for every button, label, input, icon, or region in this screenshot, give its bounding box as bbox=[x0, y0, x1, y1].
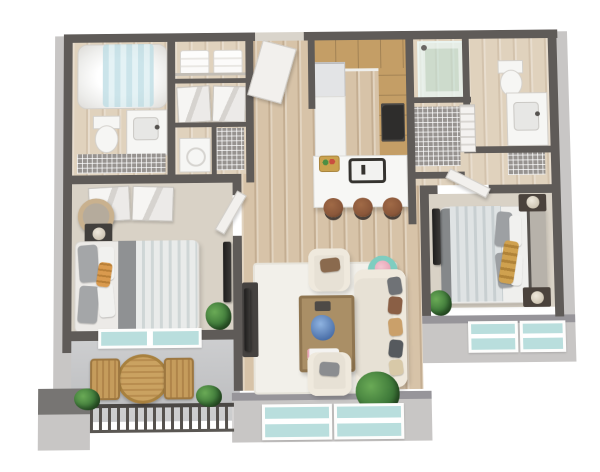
towel-stack-1 bbox=[180, 50, 209, 75]
bedroom1-pillow-gray-2 bbox=[77, 286, 100, 324]
washer-wire-divider bbox=[212, 122, 217, 182]
sofa-pillow-4 bbox=[388, 339, 404, 358]
floor-plan-image: { "meta": { "title": "3D Floor Plan — Tw… bbox=[0, 0, 600, 472]
refrigerator bbox=[314, 62, 346, 98]
bedroom1-pillow-white-2 bbox=[97, 283, 116, 318]
bedroom1-plant bbox=[206, 302, 232, 330]
bedroom1-bottom-wall-left bbox=[62, 331, 98, 341]
bedroom2-lamp-top bbox=[526, 196, 539, 209]
bedroom2-top-wall-left bbox=[420, 185, 438, 194]
bedroom1-blanket bbox=[118, 241, 136, 331]
shower-head bbox=[421, 45, 427, 51]
bathroom1-wire-shelf bbox=[77, 153, 166, 173]
bar-stool-1 bbox=[323, 198, 343, 218]
bathroom2-accordion-door bbox=[459, 104, 476, 152]
balcony-railing bbox=[90, 403, 234, 433]
sofa-pillow-5 bbox=[388, 359, 404, 376]
island-sink bbox=[348, 158, 386, 183]
linen-bifold-divider bbox=[167, 78, 253, 84]
fruit-basket bbox=[319, 156, 340, 173]
bathroom2-bottom-wall bbox=[464, 146, 559, 154]
vanity-2-sink bbox=[513, 102, 539, 131]
bedroom1-duvet bbox=[136, 240, 198, 331]
column-front bbox=[38, 414, 90, 450]
living-window-2 bbox=[334, 403, 405, 440]
kitchen-counter-left bbox=[314, 96, 346, 158]
armchair-top-cushion bbox=[319, 257, 340, 273]
balcony-bush-right bbox=[196, 385, 222, 407]
vanity-2-faucet bbox=[535, 111, 540, 116]
island-faucet bbox=[361, 165, 365, 175]
bedroom2-window-1 bbox=[468, 321, 518, 353]
range-stove bbox=[381, 103, 405, 142]
armchair-bottom-cushion bbox=[319, 361, 340, 376]
toilet-1-bowl bbox=[95, 125, 119, 153]
bedroom1-lamp bbox=[93, 227, 106, 240]
sofa-pillow-2 bbox=[387, 296, 402, 315]
laundry-wire-shelf bbox=[217, 128, 245, 171]
apartment-floor-plan bbox=[0, 10, 600, 472]
living-tv bbox=[244, 288, 250, 351]
coffee-table-decor-dark bbox=[315, 301, 331, 311]
washer-door bbox=[186, 147, 206, 166]
hall-bifold-door-1 bbox=[176, 85, 211, 123]
patio-chair-right bbox=[164, 358, 194, 400]
bedroom2-top-wall-right bbox=[489, 184, 561, 193]
kitchen-left-wall bbox=[308, 40, 316, 109]
hall-bifold-door-2 bbox=[212, 85, 246, 122]
living-window bbox=[262, 404, 332, 441]
coffee-table-flowers-blue bbox=[311, 315, 335, 341]
balcony-sliding-door bbox=[98, 328, 202, 349]
balcony-bush-left bbox=[74, 388, 100, 410]
bedroom2-lamp-bottom bbox=[531, 291, 544, 304]
left-wall bbox=[62, 34, 72, 353]
bar-stool-2 bbox=[353, 198, 373, 218]
bedroom2-window-2 bbox=[520, 320, 567, 352]
bedroom2-plant bbox=[428, 290, 452, 316]
sofa-pillow-1 bbox=[387, 276, 403, 295]
bedroom2-tv bbox=[432, 209, 441, 265]
living-bedroom1-divider-lower bbox=[233, 236, 243, 391]
sofa-pillow-3 bbox=[388, 318, 404, 337]
bedroom1-bifold-2 bbox=[131, 186, 174, 222]
bathroom1-right-wall bbox=[167, 42, 175, 183]
closet-column-right-wall bbox=[245, 41, 254, 182]
shower-curtain bbox=[103, 44, 154, 107]
towel-stack-2 bbox=[213, 50, 242, 75]
bedroom1-tv bbox=[223, 242, 231, 303]
shower-closet-divider bbox=[406, 97, 471, 103]
linen-closet-2-shelf bbox=[508, 152, 546, 175]
bar-stool-3 bbox=[382, 197, 402, 217]
hall-closet-wire-shelf bbox=[412, 106, 460, 166]
vanity-1-faucet bbox=[155, 125, 160, 130]
